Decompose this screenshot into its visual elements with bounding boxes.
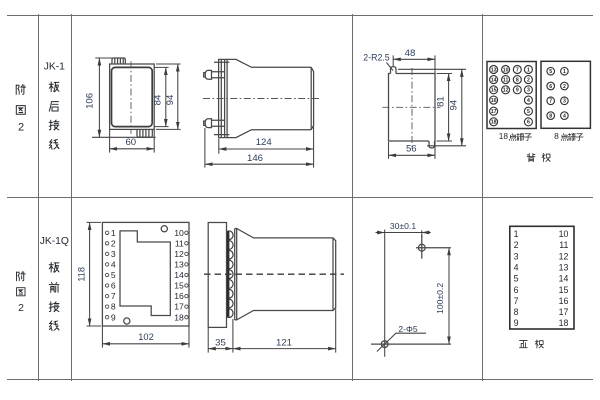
svg-text:13: 13 xyxy=(559,263,569,273)
svg-text:16: 16 xyxy=(174,291,184,301)
svg-text:1: 1 xyxy=(527,67,530,73)
svg-text:14: 14 xyxy=(174,270,184,280)
svg-text:7: 7 xyxy=(516,67,519,73)
svg-text:JK-1: JK-1 xyxy=(44,62,65,73)
svg-text:6: 6 xyxy=(527,120,530,126)
svg-text:30±0.1: 30±0.1 xyxy=(390,221,416,231)
svg-text:17: 17 xyxy=(559,307,569,317)
svg-text:35: 35 xyxy=(215,337,226,348)
svg-text:2: 2 xyxy=(18,122,24,134)
svg-text:1: 1 xyxy=(563,69,566,75)
svg-text:9: 9 xyxy=(516,88,519,94)
svg-text:18: 18 xyxy=(559,318,569,328)
svg-text:2: 2 xyxy=(111,238,116,248)
svg-text:15: 15 xyxy=(491,88,497,94)
svg-text:18: 18 xyxy=(491,120,497,126)
svg-text:8: 8 xyxy=(516,78,519,84)
svg-text:8: 8 xyxy=(549,114,552,120)
svg-text:14: 14 xyxy=(491,78,497,84)
svg-text:48: 48 xyxy=(405,48,416,59)
svg-text:9: 9 xyxy=(514,318,519,328)
svg-text:7: 7 xyxy=(549,99,552,105)
svg-text:15: 15 xyxy=(559,285,569,295)
svg-text:1: 1 xyxy=(111,228,116,238)
svg-text:60: 60 xyxy=(125,137,136,148)
svg-text:10: 10 xyxy=(559,229,569,239)
svg-text:4: 4 xyxy=(514,263,519,273)
svg-text:8: 8 xyxy=(111,302,116,312)
svg-text:14: 14 xyxy=(559,274,569,284)
svg-text:106: 106 xyxy=(85,93,96,109)
svg-text:81: 81 xyxy=(436,96,447,107)
svg-text:6: 6 xyxy=(111,281,116,291)
svg-text:13: 13 xyxy=(174,260,184,270)
svg-text:16: 16 xyxy=(559,296,569,306)
svg-text:11: 11 xyxy=(559,240,568,250)
svg-text:18: 18 xyxy=(499,131,509,141)
svg-text:6: 6 xyxy=(514,285,519,295)
svg-text:18: 18 xyxy=(174,312,184,322)
svg-text:6: 6 xyxy=(549,84,552,90)
svg-text:84: 84 xyxy=(152,94,163,105)
svg-text:118: 118 xyxy=(76,267,86,282)
svg-text:12: 12 xyxy=(503,88,509,94)
svg-text:4: 4 xyxy=(527,98,530,104)
svg-text:2-R2.5: 2-R2.5 xyxy=(363,53,390,63)
svg-text:56: 56 xyxy=(406,144,417,155)
svg-text:8: 8 xyxy=(554,131,559,141)
svg-text:124: 124 xyxy=(256,137,273,148)
svg-text:121: 121 xyxy=(276,337,292,348)
svg-text:5: 5 xyxy=(527,109,530,115)
svg-text:5: 5 xyxy=(111,270,116,280)
svg-text:JK-1Q: JK-1Q xyxy=(40,236,69,247)
svg-text:9: 9 xyxy=(111,312,116,322)
svg-text:12: 12 xyxy=(559,251,569,261)
svg-text:3: 3 xyxy=(563,99,566,105)
svg-text:3: 3 xyxy=(514,251,519,261)
svg-text:94: 94 xyxy=(165,94,176,105)
svg-text:12: 12 xyxy=(174,249,184,259)
svg-text:146: 146 xyxy=(247,153,263,164)
svg-text:15: 15 xyxy=(174,281,184,291)
svg-text:11: 11 xyxy=(175,238,184,248)
svg-text:10: 10 xyxy=(503,67,509,73)
svg-text:2-Φ5: 2-Φ5 xyxy=(398,324,417,334)
svg-text:8: 8 xyxy=(514,307,519,317)
svg-text:7: 7 xyxy=(514,296,519,306)
svg-text:13: 13 xyxy=(491,67,497,73)
svg-text:4: 4 xyxy=(111,260,116,270)
svg-text:102: 102 xyxy=(138,332,154,342)
svg-text:1: 1 xyxy=(514,229,519,239)
svg-text:94: 94 xyxy=(449,99,460,110)
svg-text:7: 7 xyxy=(111,291,116,301)
svg-text:10: 10 xyxy=(174,228,184,238)
svg-text:4: 4 xyxy=(563,114,566,120)
svg-text:17: 17 xyxy=(174,302,184,312)
svg-text:11: 11 xyxy=(503,78,509,84)
svg-text:17: 17 xyxy=(491,109,497,115)
svg-text:100±0.2: 100±0.2 xyxy=(435,283,445,314)
svg-text:2: 2 xyxy=(18,302,24,314)
svg-text:3: 3 xyxy=(527,88,530,94)
svg-text:16: 16 xyxy=(491,98,497,104)
svg-text:2: 2 xyxy=(563,84,566,90)
svg-text:2: 2 xyxy=(514,240,519,250)
svg-text:5: 5 xyxy=(514,274,519,284)
svg-text:3: 3 xyxy=(111,249,116,259)
svg-text:5: 5 xyxy=(549,69,552,75)
svg-text:2: 2 xyxy=(527,78,530,84)
